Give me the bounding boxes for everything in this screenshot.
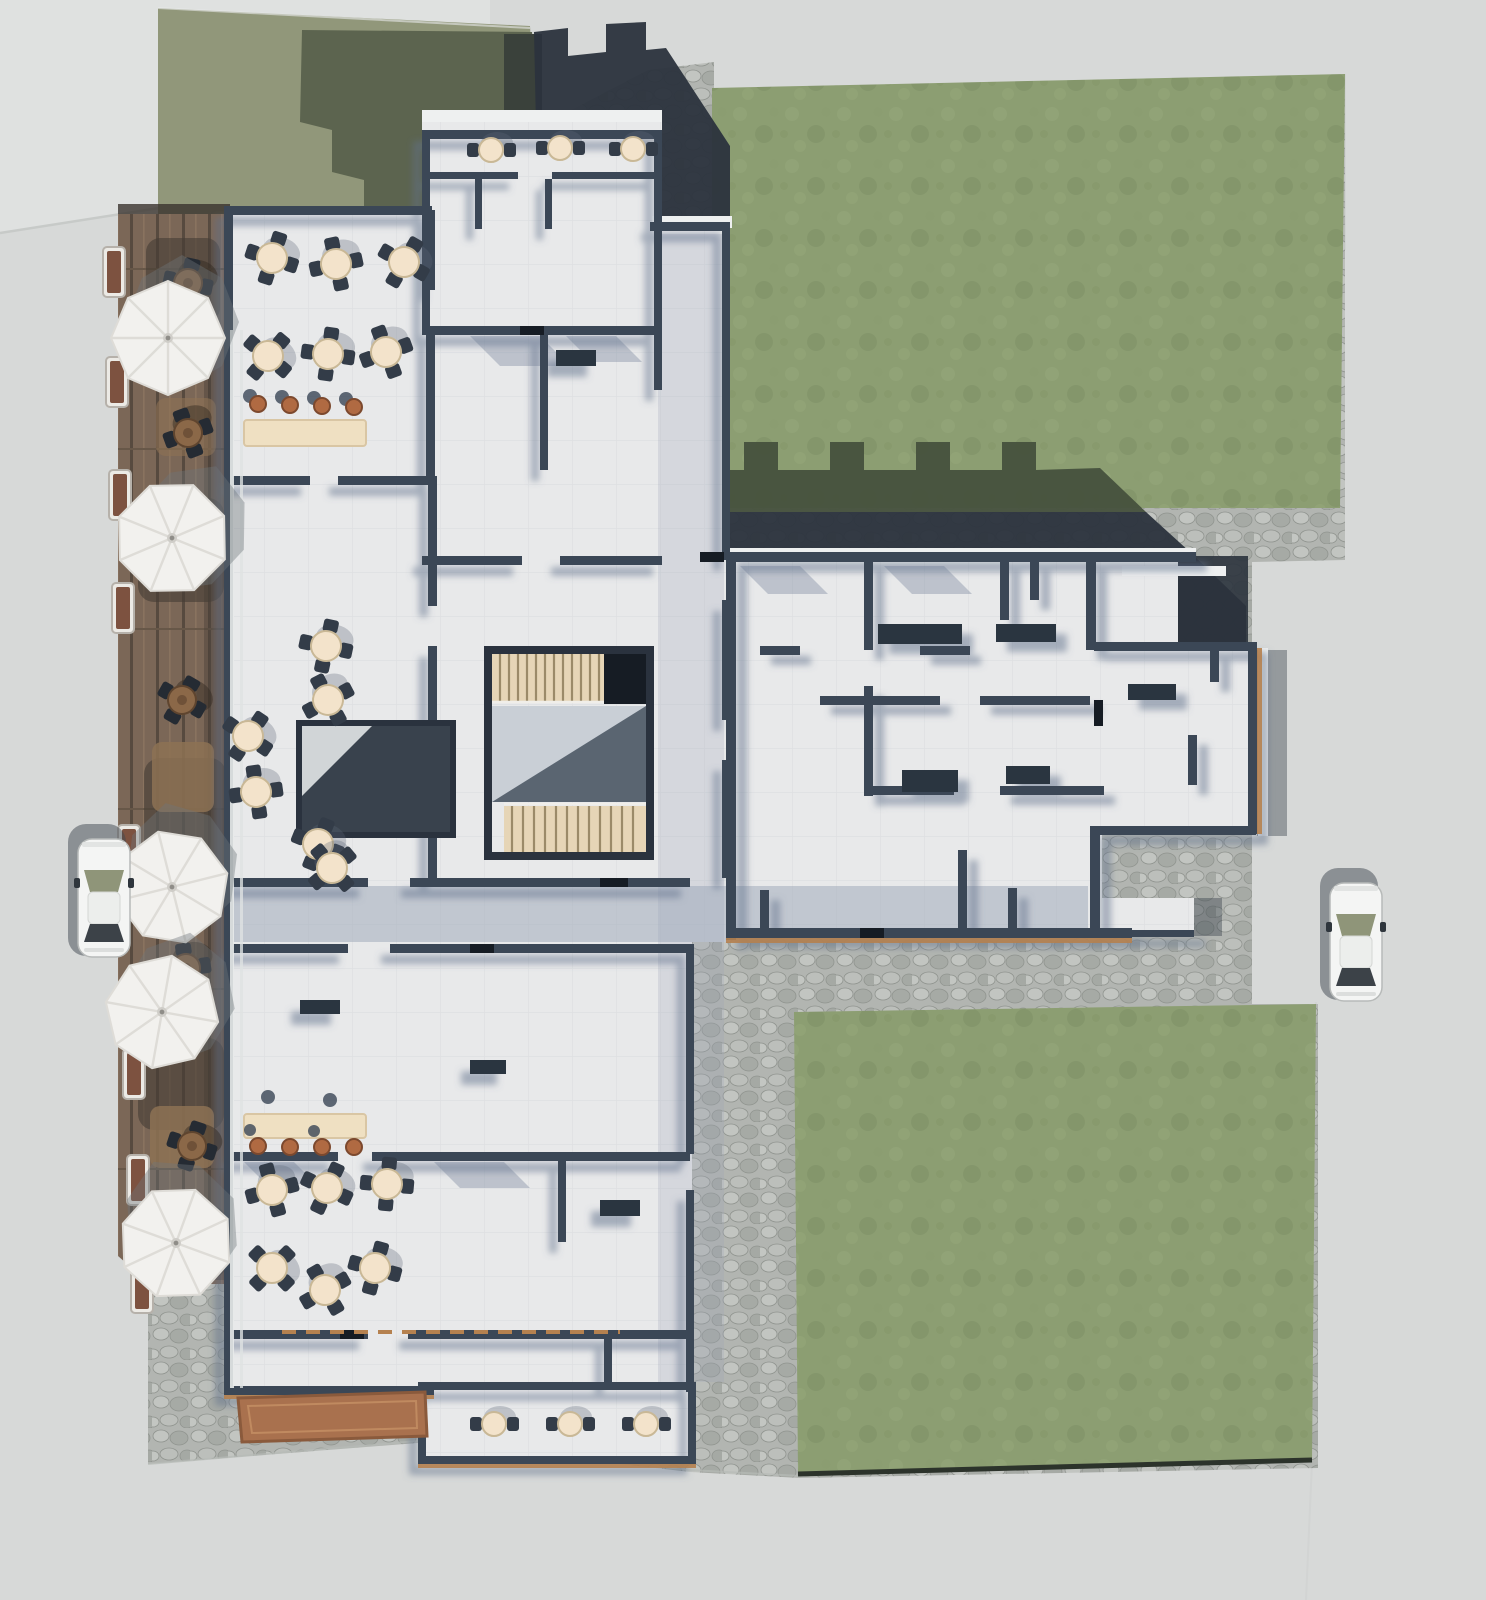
elevator-shaft xyxy=(604,654,646,704)
northeast-room-slab xyxy=(1098,648,1254,832)
planter xyxy=(103,247,125,297)
planter xyxy=(112,583,134,633)
bar-stool xyxy=(346,399,362,415)
bar-stool xyxy=(250,396,266,412)
lawn-south xyxy=(794,1004,1316,1474)
white-car xyxy=(68,824,134,957)
bar-stool xyxy=(282,397,298,413)
bar-counter xyxy=(244,420,366,446)
east-wing-slab xyxy=(728,560,1102,938)
stair-core xyxy=(484,646,654,860)
site-plan-render xyxy=(0,0,1486,1600)
bar-counter xyxy=(244,1114,366,1138)
void-core xyxy=(296,720,456,838)
bar-stool xyxy=(282,1139,298,1155)
bar-stool xyxy=(314,1139,330,1155)
bar-stool xyxy=(346,1139,362,1155)
bar-stool xyxy=(250,1138,266,1154)
west-block-slab xyxy=(228,330,730,1392)
terracotta-mat xyxy=(238,1392,427,1442)
bar-stool xyxy=(314,398,330,414)
white-car xyxy=(1320,868,1386,1001)
